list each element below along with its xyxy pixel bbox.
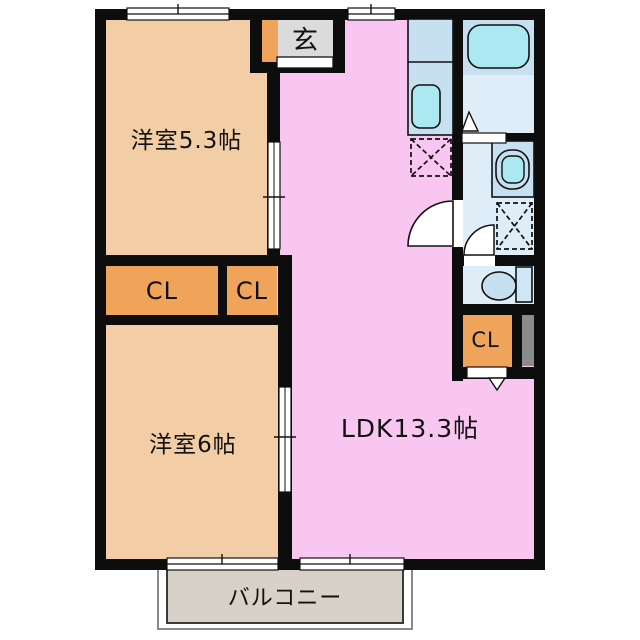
- bathroom-tub-zone: [463, 19, 534, 75]
- wall-washroom-toilet: [452, 255, 545, 266]
- wall-closet-ldk-south: [452, 367, 545, 379]
- closet-hall-right: [227, 266, 277, 315]
- wall-ldk-east: [452, 9, 463, 381]
- entrance-floor: [278, 19, 333, 58]
- entrance-shoe-cabinet: [262, 19, 278, 63]
- wall-closet-ldk-inner: [512, 313, 522, 367]
- wall-bottom: [95, 559, 545, 570]
- wall-closet-divider: [218, 266, 227, 315]
- room-bedroom2: [106, 325, 280, 559]
- toilet-room-floor: [463, 266, 534, 304]
- closet-ldk-bar: [522, 313, 534, 366]
- closet-ldk: [463, 313, 512, 367]
- wall-bath-washroom: [452, 133, 545, 143]
- wall-closet-row-bottom: [106, 315, 290, 325]
- bathroom-floor: [463, 75, 534, 133]
- wall-right: [534, 9, 545, 570]
- washroom-floor: [463, 143, 534, 255]
- wall-top: [95, 9, 545, 20]
- closet-hall-left: [106, 266, 218, 315]
- wall-bedroom1-east: [267, 62, 280, 255]
- room-bedroom1: [106, 19, 267, 256]
- wall-left: [95, 9, 106, 570]
- wall-bedroom2-east: [278, 255, 292, 559]
- wall-toilet-closet: [452, 304, 545, 315]
- wall-entrance-south: [250, 62, 345, 73]
- floor-plan: 洋室5.3帖 洋室6帖 LDK13.3帖 玄 CL CL CL バルコニー: [0, 0, 640, 640]
- balcony: [166, 568, 404, 624]
- wall-closet-row-top: [106, 255, 290, 266]
